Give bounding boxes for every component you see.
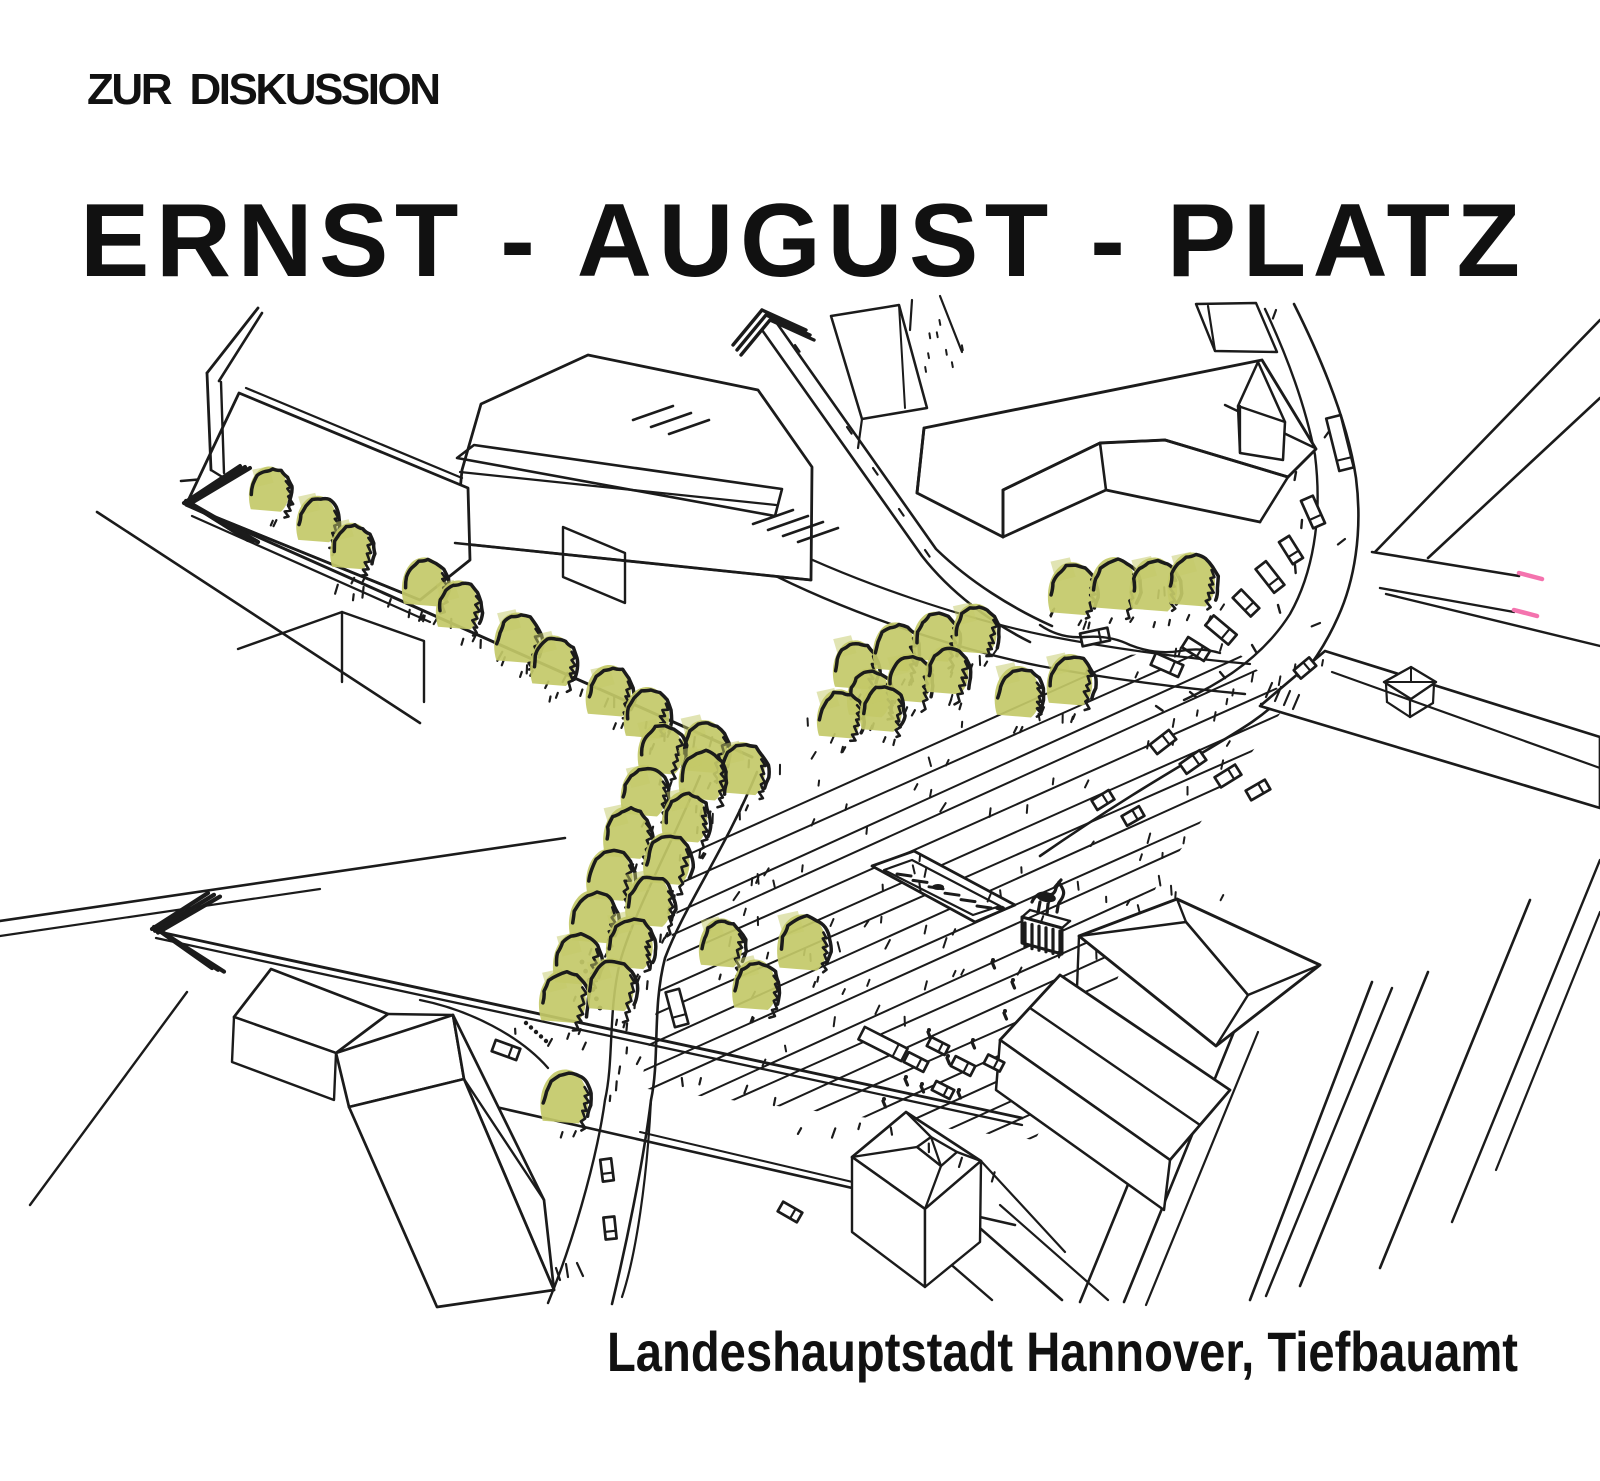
svg-text:ZUR DISKUSSION: ZUR DISKUSSION — [87, 65, 441, 114]
svg-text:Landeshauptstadt Hannover, Tie: Landeshauptstadt Hannover, Tiefbauamt — [607, 1320, 1518, 1383]
svg-text:ERNST - AUGUST - PLATZ: ERNST - AUGUST - PLATZ — [80, 183, 1520, 299]
